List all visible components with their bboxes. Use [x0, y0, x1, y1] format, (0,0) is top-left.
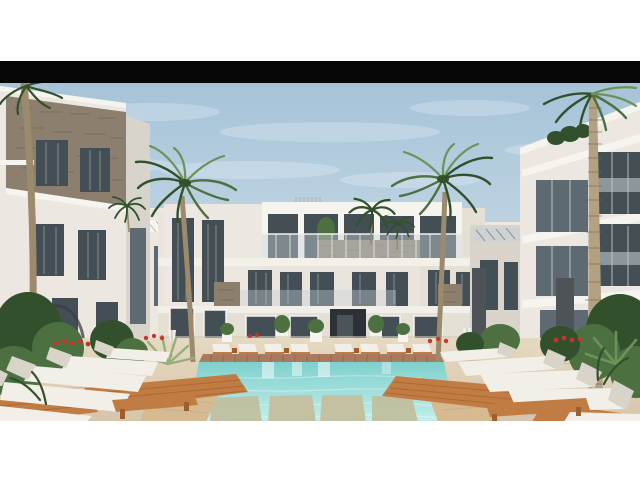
- glass-balustrade: [598, 252, 640, 265]
- window: [80, 148, 110, 192]
- window: [36, 140, 68, 186]
- letterbox-bar: [0, 61, 640, 83]
- pool-coping: [199, 354, 444, 362]
- window: [130, 228, 146, 324]
- photo: [0, 81, 640, 425]
- window: [78, 230, 106, 280]
- center-building: [158, 197, 522, 345]
- window: [34, 224, 64, 276]
- glass-balustrade: [262, 234, 462, 262]
- glass-balustrade: [598, 178, 640, 192]
- roof-pergola: [296, 197, 320, 202]
- screenshot-canvas: [0, 0, 640, 480]
- glass-balustrade: [240, 290, 396, 306]
- resort-rendering: [0, 0, 640, 480]
